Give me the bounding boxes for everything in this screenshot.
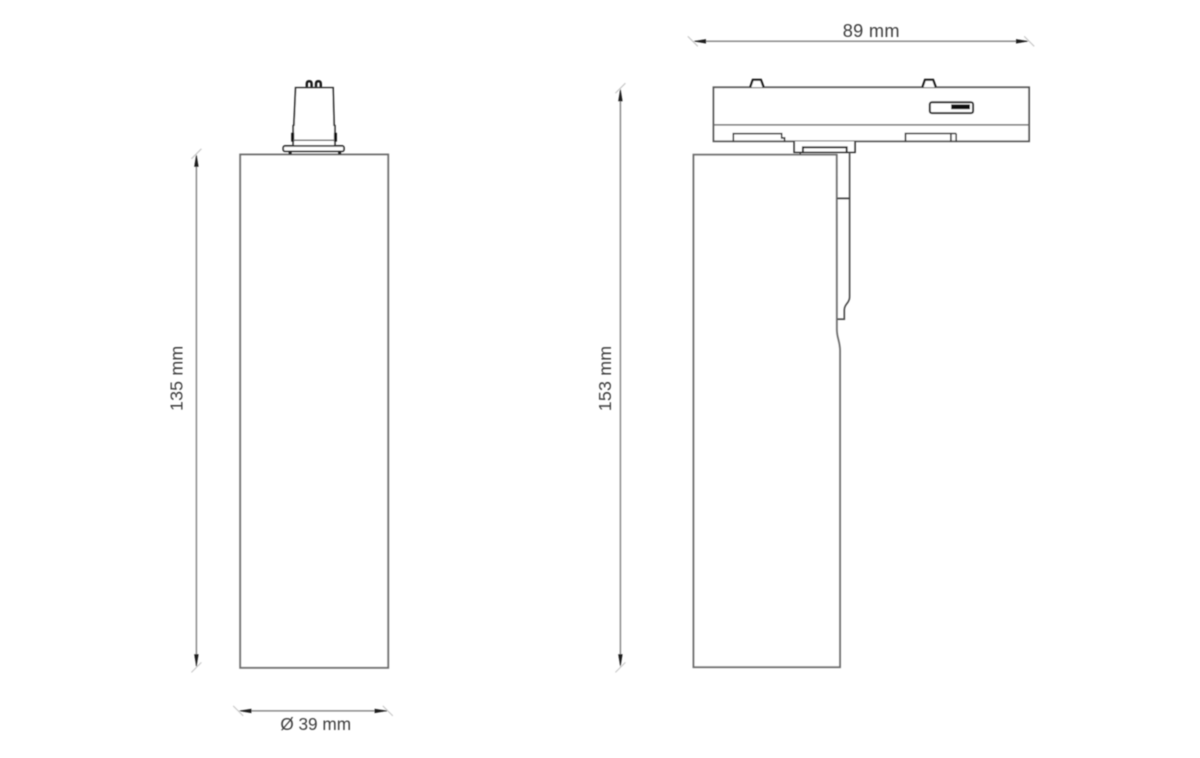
svg-text:135 mm: 135 mm xyxy=(166,346,186,411)
svg-text:Ø 39 mm: Ø 39 mm xyxy=(280,714,351,734)
svg-text:89 mm: 89 mm xyxy=(843,21,900,41)
svg-text:153 mm: 153 mm xyxy=(595,346,615,411)
